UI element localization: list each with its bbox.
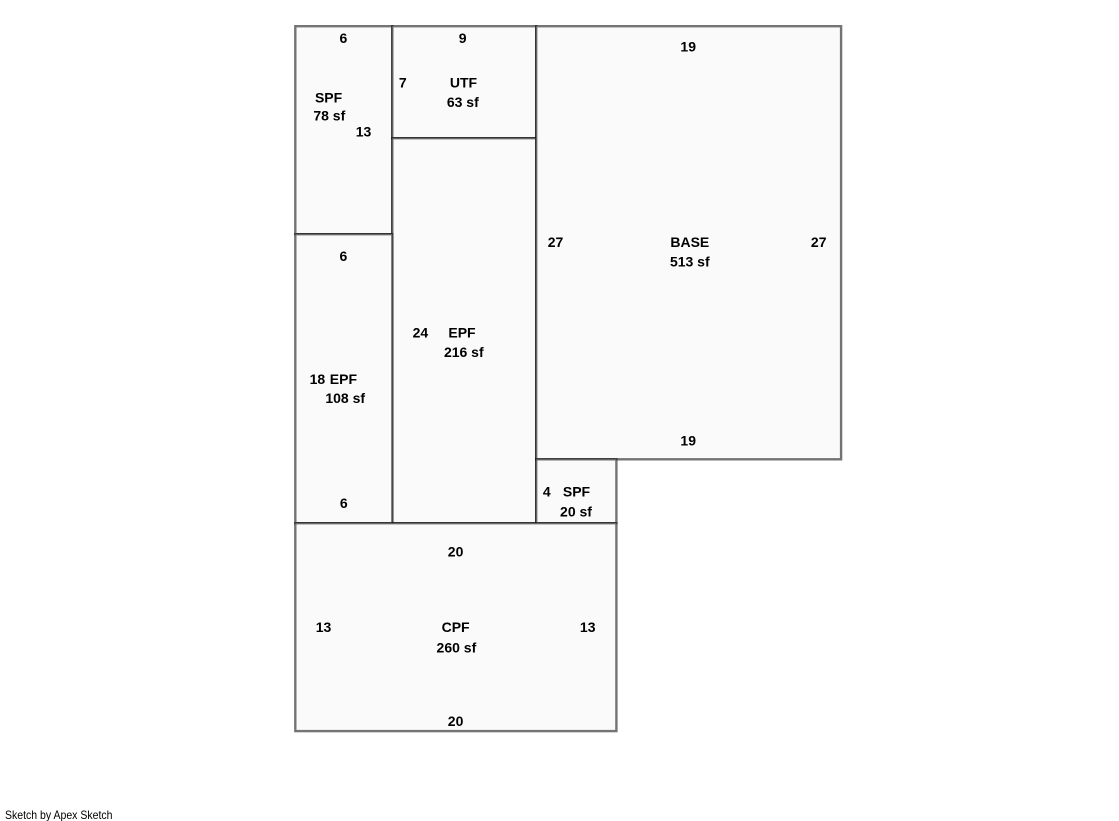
svg-text:9: 9 xyxy=(459,30,467,46)
svg-text:216 sf: 216 sf xyxy=(444,344,484,360)
svg-text:20: 20 xyxy=(448,713,464,729)
svg-text:260 sf: 260 sf xyxy=(437,639,477,655)
svg-text:19: 19 xyxy=(680,39,696,55)
svg-text:78 sf: 78 sf xyxy=(313,108,345,124)
svg-text:EPF: EPF xyxy=(330,371,358,387)
svg-text:BASE: BASE xyxy=(670,234,709,250)
svg-text:6: 6 xyxy=(340,495,348,511)
svg-text:UTF: UTF xyxy=(450,75,478,91)
svg-text:13: 13 xyxy=(356,124,372,140)
svg-text:13: 13 xyxy=(580,619,596,635)
svg-text:EPF: EPF xyxy=(448,324,476,340)
svg-text:63 sf: 63 sf xyxy=(447,94,479,110)
svg-text:SPF: SPF xyxy=(315,90,343,106)
svg-text:Sketch by Apex Sketch: Sketch by Apex Sketch xyxy=(5,808,113,821)
svg-text:7: 7 xyxy=(399,75,407,91)
svg-text:27: 27 xyxy=(548,234,564,250)
svg-text:CPF: CPF xyxy=(442,619,470,635)
svg-text:20: 20 xyxy=(448,543,464,559)
svg-text:6: 6 xyxy=(340,248,348,264)
svg-text:24: 24 xyxy=(413,324,429,340)
svg-text:20 sf: 20 sf xyxy=(560,503,592,519)
svg-text:13: 13 xyxy=(316,619,332,635)
svg-text:108 sf: 108 sf xyxy=(325,390,365,406)
svg-text:4: 4 xyxy=(543,484,551,500)
svg-text:18: 18 xyxy=(310,371,326,387)
svg-text:SPF: SPF xyxy=(563,484,591,500)
svg-text:19: 19 xyxy=(680,433,696,449)
svg-text:6: 6 xyxy=(340,30,348,46)
svg-text:27: 27 xyxy=(811,234,827,250)
svg-text:513 sf: 513 sf xyxy=(670,253,710,269)
